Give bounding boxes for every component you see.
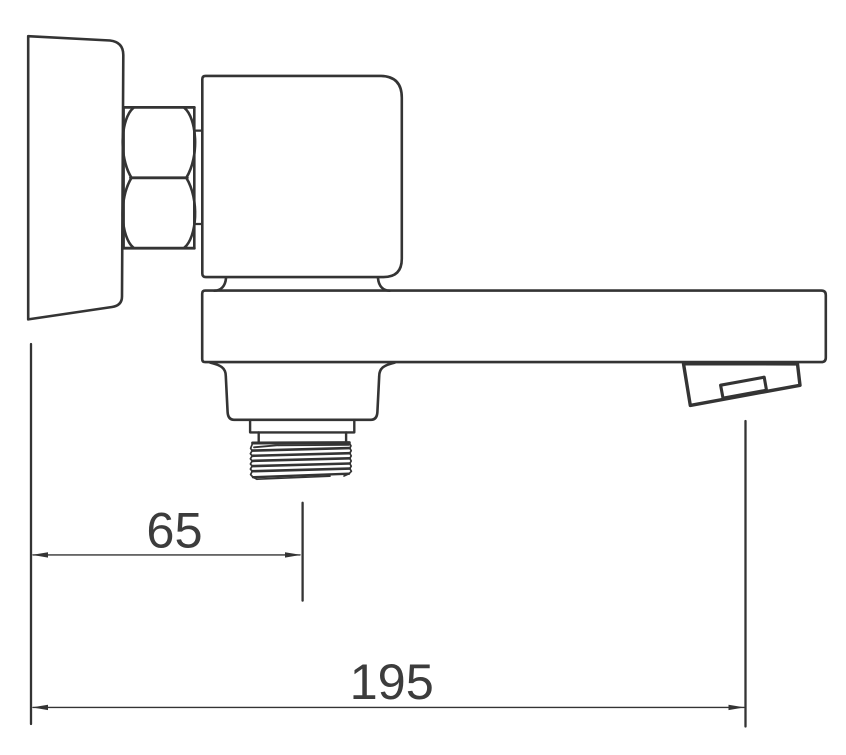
- svg-text:65: 65: [146, 502, 202, 559]
- svg-text:195: 195: [350, 653, 434, 710]
